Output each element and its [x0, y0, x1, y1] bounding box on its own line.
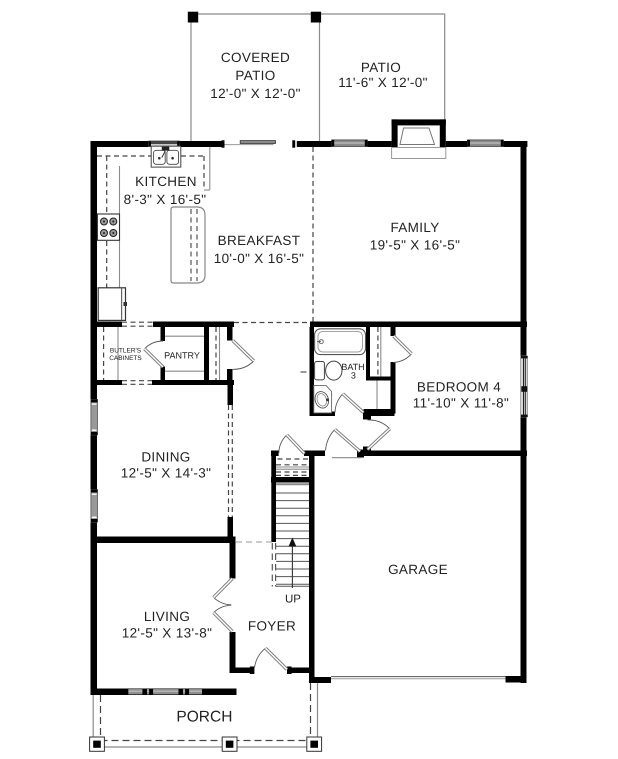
- svg-text:11'-6" X 12'-0": 11'-6" X 12'-0": [338, 75, 428, 90]
- svg-text:LIVING: LIVING: [144, 609, 190, 624]
- svg-text:19'-5" X 16'-5": 19'-5" X 16'-5": [370, 238, 461, 253]
- svg-text:FOYER: FOYER: [248, 619, 296, 634]
- svg-text:PANTRY: PANTRY: [164, 351, 200, 361]
- svg-text:DINING: DINING: [141, 450, 190, 465]
- svg-text:11'-10" X 11'-8": 11'-10" X 11'-8": [413, 396, 509, 411]
- svg-text:3: 3: [351, 371, 356, 381]
- svg-text:PATIO: PATIO: [235, 68, 275, 83]
- svg-text:8'-3" X 16'-5": 8'-3" X 16'-5": [124, 192, 207, 207]
- svg-text:10'-0" X 16'-5": 10'-0" X 16'-5": [214, 251, 305, 266]
- svg-text:COVERED: COVERED: [221, 50, 290, 65]
- svg-text:UP: UP: [285, 594, 301, 606]
- svg-text:PATIO: PATIO: [361, 60, 401, 75]
- svg-text:BEDROOM 4: BEDROOM 4: [417, 380, 501, 395]
- svg-text:12'-0" X 12'-0": 12'-0" X 12'-0": [210, 86, 301, 101]
- svg-text:12'-5" X 14'-3": 12'-5" X 14'-3": [121, 466, 212, 481]
- svg-text:BREAKFAST: BREAKFAST: [218, 233, 301, 248]
- svg-text:GARAGE: GARAGE: [388, 562, 448, 577]
- svg-text:BUTLER'S: BUTLER'S: [110, 348, 142, 355]
- svg-text:PORCH: PORCH: [176, 709, 232, 726]
- svg-text:12'-5" X 13'-8": 12'-5" X 13'-8": [122, 626, 213, 641]
- svg-text:CABINETS: CABINETS: [109, 355, 142, 362]
- svg-text:KITCHEN: KITCHEN: [135, 174, 197, 189]
- svg-text:FAMILY: FAMILY: [390, 220, 439, 235]
